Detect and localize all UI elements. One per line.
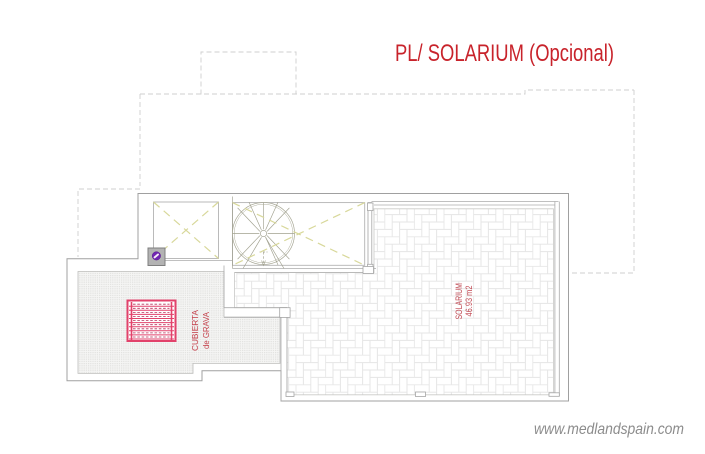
svg-text:CUBIERTA: CUBIERTA <box>190 310 200 351</box>
svg-text:de GRAVA: de GRAVA <box>201 312 211 349</box>
svg-text:46.93 m2: 46.93 m2 <box>464 286 474 317</box>
svg-text:SOLARIUM: SOLARIUM <box>454 283 464 320</box>
svg-text:PL/ SOLARIUM (Opcional): PL/ SOLARIUM (Opcional) <box>395 40 614 67</box>
svg-text:www.medlandspain.com: www.medlandspain.com <box>534 421 684 438</box>
